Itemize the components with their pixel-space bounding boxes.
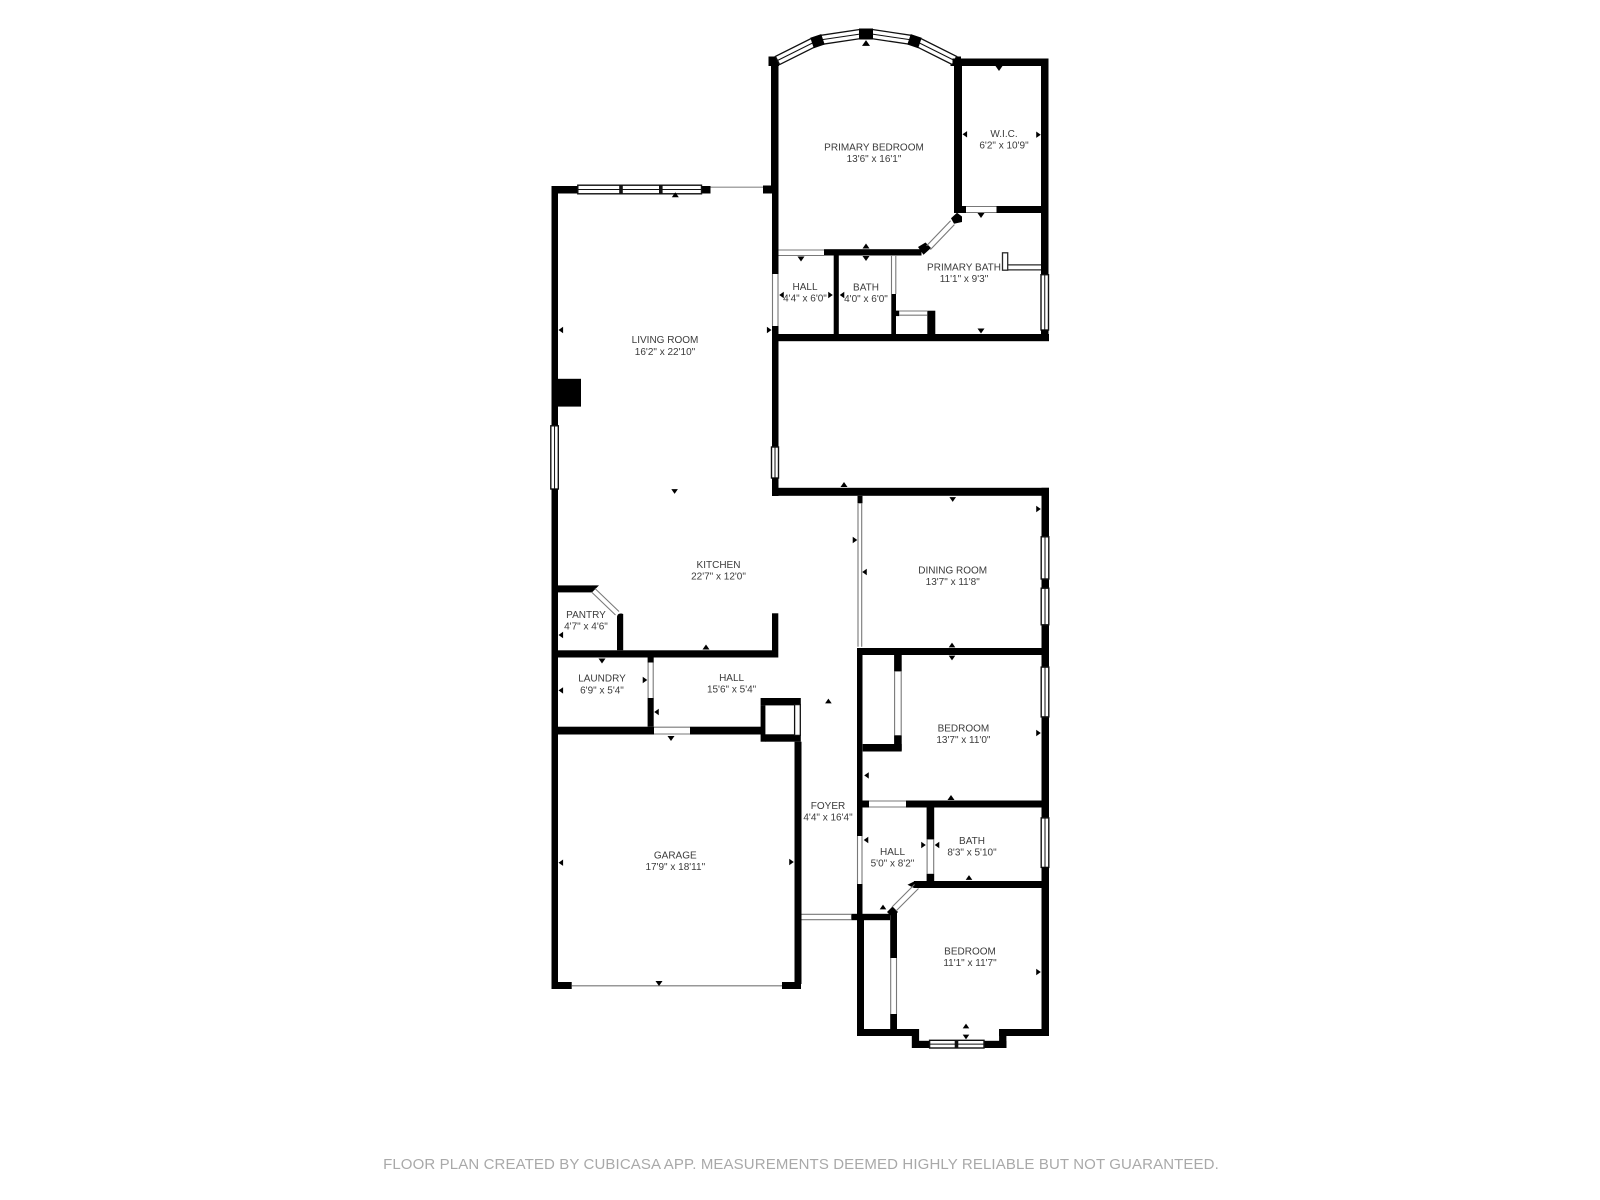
svg-text:FOYER: FOYER — [811, 801, 845, 812]
svg-text:4'4" x 6'0": 4'4" x 6'0" — [783, 293, 827, 304]
svg-text:HALL: HALL — [880, 847, 905, 858]
svg-text:HALL: HALL — [792, 282, 817, 293]
svg-text:GARAGE: GARAGE — [654, 850, 697, 861]
svg-text:22'7" x 12'0": 22'7" x 12'0" — [691, 572, 746, 583]
svg-text:17'9" x 18'11": 17'9" x 18'11" — [645, 862, 705, 873]
svg-text:4'4" x 16'4": 4'4" x 16'4" — [803, 813, 853, 824]
svg-text:5'0" x 8'2": 5'0" x 8'2" — [871, 859, 915, 870]
svg-text:13'6" x 16'1": 13'6" x 16'1" — [847, 154, 902, 165]
svg-text:8'3" x 5'10": 8'3" x 5'10" — [947, 848, 997, 859]
svg-text:BATH: BATH — [853, 283, 879, 294]
svg-text:PANTRY: PANTRY — [566, 610, 606, 621]
svg-text:W.I.C.: W.I.C. — [990, 129, 1017, 140]
svg-text:4'7" x 4'6": 4'7" x 4'6" — [564, 622, 608, 633]
svg-text:13'7" x 11'8": 13'7" x 11'8" — [926, 577, 981, 588]
svg-text:15'6" x 5'4": 15'6" x 5'4" — [707, 684, 757, 695]
svg-text:11'1" x 9'3": 11'1" x 9'3" — [940, 274, 989, 285]
svg-text:11'1" x 11'7": 11'1" x 11'7" — [943, 958, 997, 969]
svg-text:PRIMARY BEDROOM: PRIMARY BEDROOM — [824, 143, 924, 154]
svg-text:LAUNDRY: LAUNDRY — [578, 674, 626, 685]
svg-text:BEDROOM: BEDROOM — [944, 947, 996, 958]
svg-text:4'0" x 6'0": 4'0" x 6'0" — [844, 294, 888, 305]
svg-text:13'7" x 11'0": 13'7" x 11'0" — [936, 735, 991, 746]
svg-text:KITCHEN: KITCHEN — [697, 560, 741, 571]
svg-text:DINING ROOM: DINING ROOM — [918, 565, 987, 576]
svg-text:6'9" x 5'4": 6'9" x 5'4" — [580, 685, 624, 696]
svg-text:6'2" x 10'9": 6'2" x 10'9" — [979, 141, 1029, 152]
svg-text:16'2" x 22'10": 16'2" x 22'10" — [635, 347, 696, 358]
svg-text:LIVING ROOM: LIVING ROOM — [632, 335, 699, 346]
svg-text:BEDROOM: BEDROOM — [938, 723, 990, 734]
svg-text:BATH: BATH — [959, 836, 985, 847]
svg-text:PRIMARY BATH: PRIMARY BATH — [927, 262, 1001, 273]
svg-text:HALL: HALL — [719, 673, 744, 684]
svg-text:FLOOR PLAN CREATED BY CUBICASA: FLOOR PLAN CREATED BY CUBICASA APP. MEAS… — [383, 1156, 1219, 1173]
